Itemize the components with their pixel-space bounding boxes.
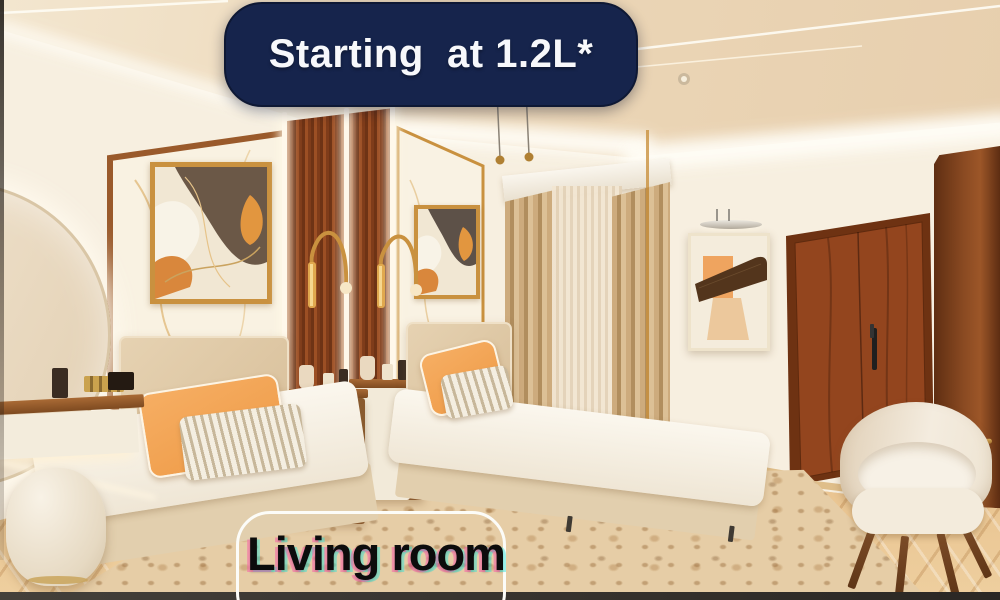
price-banner-text: Starting at 1.2L* [269,32,594,77]
bed-leg [566,516,573,532]
vase [360,356,375,380]
candle [382,364,393,380]
armchair [840,402,1000,598]
vanity-stool [6,468,106,586]
chair-leg [936,532,959,596]
chair-leg [847,527,876,590]
stool-base [28,576,88,584]
bed-leg [728,526,735,542]
chair-leg [895,536,909,597]
room-photo: Starting at 1.2L* Living room [0,0,1000,600]
price-banner: Starting at 1.2L* [224,2,638,107]
dark-box [108,372,134,390]
vanity-drawer [0,408,139,459]
room-label-box: Living room [236,511,506,600]
perfume-bottle [52,368,68,398]
chair-seat [852,488,984,534]
room-label-text: Living room [247,526,505,581]
left-edge-shadow [0,0,4,560]
